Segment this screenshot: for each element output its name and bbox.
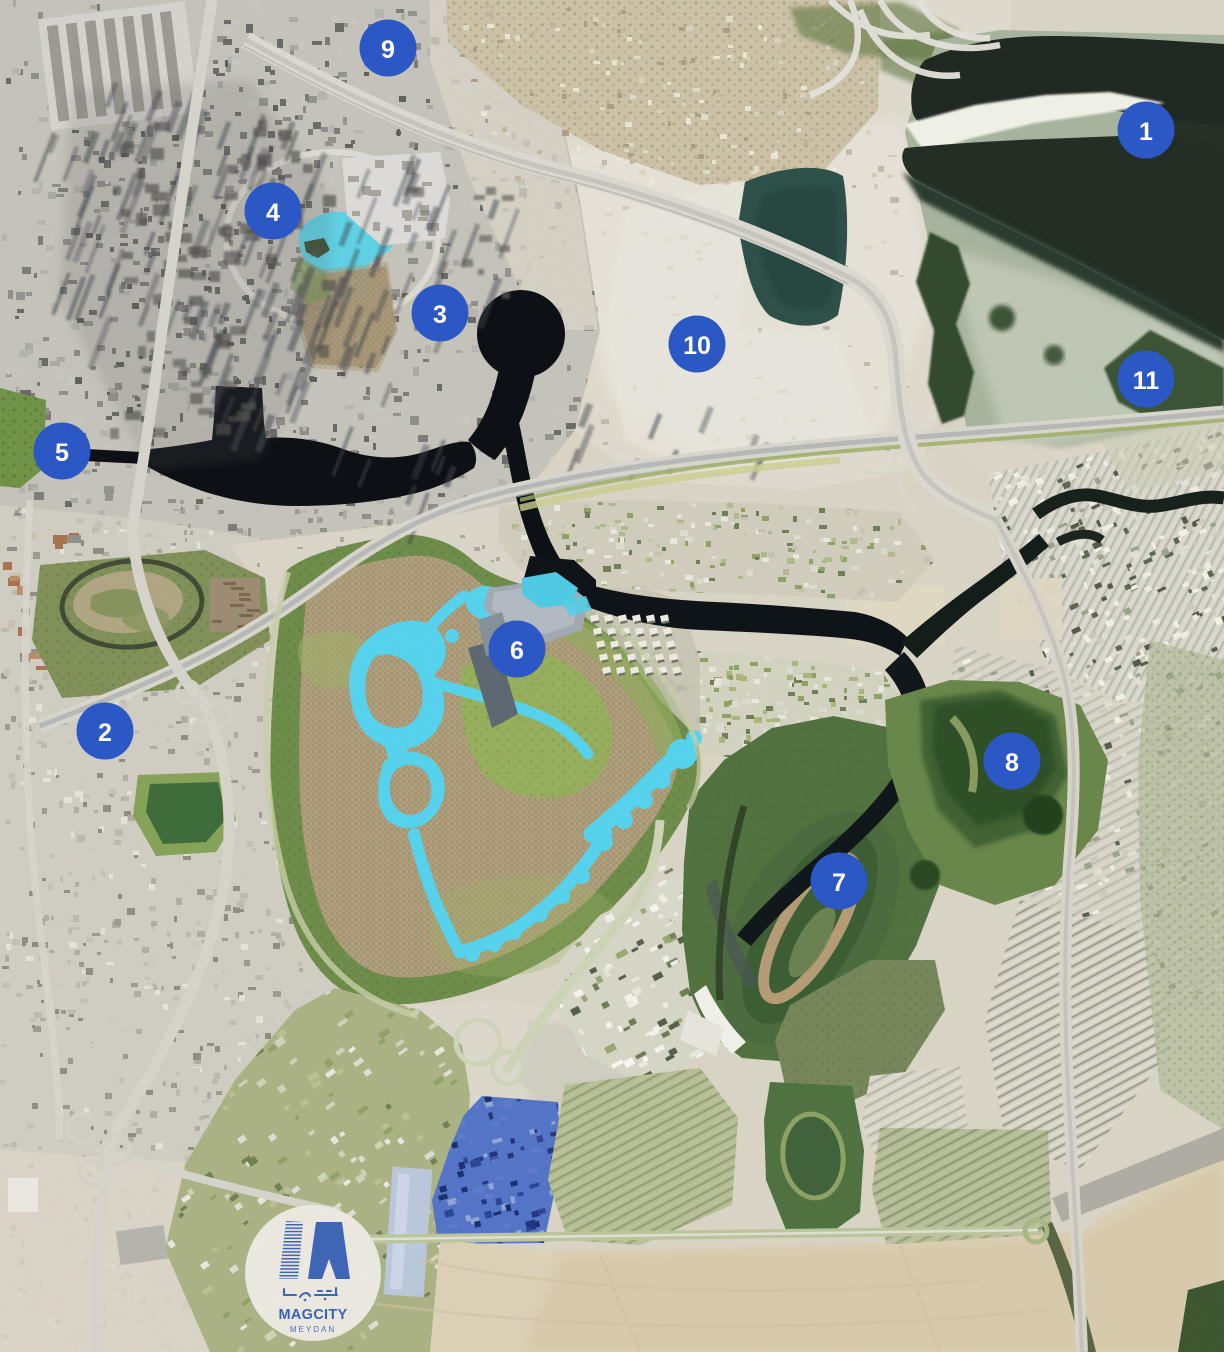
- svg-text:1: 1: [1139, 118, 1153, 146]
- svg-text:10: 10: [683, 332, 711, 360]
- svg-text:7: 7: [832, 869, 846, 897]
- svg-text:6: 6: [510, 637, 524, 665]
- svg-text:11: 11: [1133, 367, 1160, 395]
- svg-text:5: 5: [55, 439, 69, 467]
- svg-text:4: 4: [266, 199, 280, 227]
- svg-text:MEYDAN: MEYDAN: [290, 1325, 336, 1334]
- svg-text:8: 8: [1005, 749, 1019, 777]
- svg-text:3: 3: [433, 301, 447, 329]
- svg-text:9: 9: [381, 36, 395, 64]
- svg-text:2: 2: [98, 719, 112, 747]
- svg-text:MAGCITY: MAGCITY: [279, 1307, 348, 1323]
